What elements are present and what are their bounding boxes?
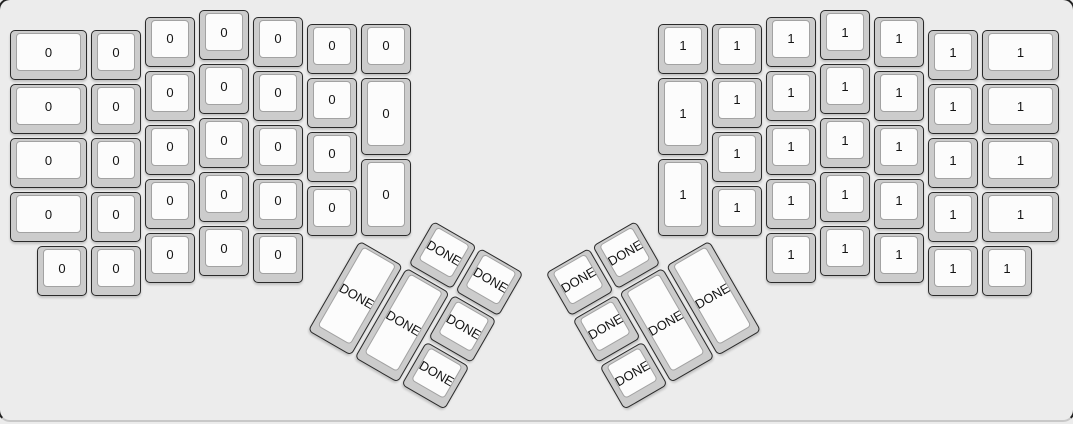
keycap[interactable]: 1	[658, 159, 708, 236]
keycap[interactable]: 1	[982, 30, 1059, 80]
keycap-top: 0	[313, 189, 351, 227]
keycap-top: 0	[259, 182, 297, 220]
keycap-top: 0	[259, 20, 297, 58]
keycap-label: DONE	[384, 307, 423, 337]
keycap-top: 0	[259, 236, 297, 274]
keycap-label: 0	[382, 188, 389, 201]
keycap-top: 1	[718, 81, 756, 119]
keycap-label: 1	[787, 194, 794, 207]
keycap-top: DONE	[465, 253, 517, 305]
keycap-label: 1	[733, 39, 740, 52]
keycap[interactable]: 0	[253, 71, 303, 121]
keycap[interactable]: 0	[361, 78, 411, 155]
keycap-label: 1	[841, 188, 848, 201]
keycap[interactable]: 1	[820, 226, 870, 276]
keycap[interactable]: 1	[712, 78, 762, 128]
keycap-top: DONE	[411, 347, 463, 399]
keycap[interactable]: 0	[199, 172, 249, 222]
keycap[interactable]: 0	[361, 159, 411, 236]
keycap-label: 1	[1017, 208, 1024, 221]
keycap-top: 1	[880, 74, 918, 112]
keycap-label: DONE	[471, 264, 510, 294]
keycap-label: 1	[1017, 46, 1024, 59]
keycap-top: 0	[97, 87, 135, 125]
keycap-label: 0	[58, 262, 65, 275]
keycap-label: DONE	[586, 311, 625, 341]
keycap[interactable]: 0	[91, 192, 141, 242]
keycap-top: 1	[934, 249, 972, 287]
keycap[interactable]: 0	[253, 17, 303, 67]
keycap-label: 1	[841, 134, 848, 147]
keycap[interactable]: 1	[982, 246, 1032, 296]
keycap-top: 1	[988, 249, 1026, 287]
keycap-label: 0	[274, 32, 281, 45]
keycap-top: 0	[97, 195, 135, 233]
keycap-top: 0	[97, 249, 135, 287]
keycap[interactable]: 0	[199, 226, 249, 276]
keycap-label: 1	[733, 93, 740, 106]
keycap-label: 0	[166, 32, 173, 45]
keycap-label: 0	[274, 86, 281, 99]
keycap[interactable]: 1	[766, 17, 816, 67]
keycap-label: 0	[274, 140, 281, 153]
keycap-label: 1	[895, 194, 902, 207]
keycap-top: 0	[205, 67, 243, 105]
keycap-label: 0	[328, 147, 335, 160]
keycap[interactable]: 1	[820, 172, 870, 222]
keycap-label: 1	[841, 242, 848, 255]
keycap-label: 0	[220, 26, 227, 39]
keycap-top: 0	[313, 27, 351, 65]
keycap[interactable]: 0	[253, 233, 303, 283]
keycap[interactable]: 0	[307, 186, 357, 236]
keycap-label: 1	[841, 26, 848, 39]
keycap[interactable]: 1	[712, 186, 762, 236]
keycap-label: 0	[112, 154, 119, 167]
keycap[interactable]: 0	[91, 246, 141, 296]
keycap-top: 1	[826, 175, 864, 213]
keycap-top: 0	[97, 33, 135, 71]
keycap-top: 0	[16, 33, 81, 71]
keycap-label: DONE	[425, 237, 464, 267]
keycap-label: 1	[787, 32, 794, 45]
keycap[interactable]: 0	[253, 125, 303, 175]
keycap-top: 1	[718, 135, 756, 173]
keycap-top: 1	[988, 141, 1053, 179]
keycap-label: 0	[328, 201, 335, 214]
keycap-top: 0	[151, 128, 189, 166]
keycap-label: DONE	[417, 358, 456, 388]
keycap-top: 0	[151, 182, 189, 220]
keycap-top: 0	[151, 20, 189, 58]
keycap[interactable]: 0	[253, 179, 303, 229]
keycap-top: 1	[826, 121, 864, 159]
keycap[interactable]: 1	[928, 138, 978, 188]
keycap-label: 0	[220, 242, 227, 255]
keycap[interactable]: 1	[766, 179, 816, 229]
keycap[interactable]: 0	[10, 84, 87, 134]
keycap-top: 0	[259, 128, 297, 166]
keycap[interactable]: 1	[982, 192, 1059, 242]
keycap-label: 0	[45, 154, 52, 167]
keycap[interactable]: 0	[10, 138, 87, 188]
keycap[interactable]: 1	[874, 71, 924, 121]
keycap[interactable]: 1	[712, 24, 762, 74]
keycap-label: 1	[679, 39, 686, 52]
keycap-top: 1	[988, 87, 1053, 125]
keycap[interactable]: 0	[199, 118, 249, 168]
keycap-top: 1	[772, 236, 810, 274]
keycap-top: 0	[205, 175, 243, 213]
keycap-label: 0	[45, 100, 52, 113]
keycap-top: 1	[880, 20, 918, 58]
keycap-label: DONE	[646, 307, 685, 337]
keycap-label: DONE	[605, 237, 644, 267]
keycap[interactable]: 1	[874, 179, 924, 229]
keycap[interactable]: 1	[982, 84, 1059, 134]
keycap-label: 0	[328, 93, 335, 106]
keycap-label: 0	[274, 248, 281, 261]
keycap-top: 0	[367, 81, 405, 146]
keycap-label: DONE	[613, 358, 652, 388]
keycap[interactable]: 1	[928, 84, 978, 134]
keycap[interactable]: 0	[145, 233, 195, 283]
keycap-label: 1	[787, 248, 794, 261]
keycap-top: 0	[367, 162, 405, 227]
keycap-label: 1	[1003, 262, 1010, 275]
keycap-top: 0	[313, 81, 351, 119]
keycap[interactable]: 1	[766, 125, 816, 175]
keycap-top: 1	[718, 27, 756, 65]
keycap[interactable]: 1	[928, 30, 978, 80]
keycap[interactable]: 0	[145, 17, 195, 67]
keycap-top: 0	[151, 74, 189, 112]
keycap-top: DONE	[579, 300, 631, 352]
keycap-label: 1	[787, 86, 794, 99]
keycap-top: 0	[16, 141, 81, 179]
keycap-top: DONE	[606, 347, 658, 399]
keycap[interactable]: 1	[874, 17, 924, 67]
keycap-top: 1	[664, 162, 702, 227]
keycap[interactable]: 0	[307, 78, 357, 128]
keycap-top: DONE	[552, 253, 604, 305]
keycap-label: 0	[112, 262, 119, 275]
keycap-label: 1	[733, 201, 740, 214]
keycap[interactable]: 0	[307, 132, 357, 182]
keycap-label: 0	[382, 107, 389, 120]
keycap-label: 0	[166, 248, 173, 261]
keycap[interactable]: 0	[199, 64, 249, 114]
keycap[interactable]: 0	[91, 30, 141, 80]
keycap[interactable]: 1	[766, 71, 816, 121]
keycap-label: 1	[733, 147, 740, 160]
keycap-top: 0	[43, 249, 81, 287]
keycap[interactable]: 0	[145, 71, 195, 121]
keycap-top: 1	[988, 195, 1053, 233]
keycap-label: 0	[45, 208, 52, 221]
keycap-label: 0	[328, 39, 335, 52]
keycap-label: DONE	[337, 280, 376, 310]
keycap[interactable]: 1	[712, 132, 762, 182]
keycap-top: 1	[772, 20, 810, 58]
keycap-top: 1	[772, 128, 810, 166]
keycap[interactable]: 1	[820, 64, 870, 114]
keycap-label: 1	[787, 140, 794, 153]
keycap[interactable]: 0	[361, 24, 411, 74]
keycap-label: 1	[949, 262, 956, 275]
keycap-top: 1	[934, 195, 972, 233]
keycap-label: 0	[382, 39, 389, 52]
keycap-top: 1	[772, 182, 810, 220]
keycap-label: 1	[949, 154, 956, 167]
keycap-top: 0	[367, 27, 405, 65]
keycap[interactable]: 1	[820, 118, 870, 168]
keycap[interactable]: 1	[658, 78, 708, 155]
keycap-top: 1	[880, 182, 918, 220]
keycap[interactable]: 0	[145, 125, 195, 175]
keycap-label: DONE	[444, 311, 483, 341]
keycap-top: DONE	[599, 226, 651, 278]
keycap[interactable]: 1	[928, 246, 978, 296]
keycap-top: 1	[826, 13, 864, 51]
keycap[interactable]: 1	[982, 138, 1059, 188]
keycap-top: 0	[205, 121, 243, 159]
keycap-top: 0	[97, 141, 135, 179]
keycap[interactable]: 1	[658, 24, 708, 74]
keycap[interactable]: 0	[145, 179, 195, 229]
keycap-top: 1	[934, 87, 972, 125]
keycap-label: 1	[1017, 100, 1024, 113]
keycap-top: 1	[880, 128, 918, 166]
keycap-label: 0	[166, 86, 173, 99]
keycap[interactable]: 1	[820, 10, 870, 60]
keycap-top: 1	[664, 81, 702, 146]
keycap-label: 1	[1017, 154, 1024, 167]
keycap[interactable]: 0	[91, 138, 141, 188]
keycap-top: 1	[772, 74, 810, 112]
keycap-label: 1	[679, 188, 686, 201]
keycap[interactable]: 1	[874, 125, 924, 175]
kle-canvas: 0000000000000000000000000000000011111111…	[0, 0, 1073, 424]
keycap-label: 0	[220, 188, 227, 201]
keycap-top: 0	[313, 135, 351, 173]
keycap-label: 1	[895, 86, 902, 99]
keycap[interactable]: 0	[10, 192, 87, 242]
keycap[interactable]: 0	[10, 30, 87, 80]
keycap-top: 0	[205, 229, 243, 267]
keycap-label: 0	[274, 194, 281, 207]
keycap-top: 1	[934, 33, 972, 71]
keycap-label: DONE	[693, 280, 732, 310]
keycap-label: 0	[220, 134, 227, 147]
keycap-label: 1	[679, 107, 686, 120]
keycap-top: 0	[259, 74, 297, 112]
keycap-label: 1	[949, 100, 956, 113]
keycap-label: 0	[112, 100, 119, 113]
keycap-top: 1	[988, 33, 1053, 71]
keycap-top: 1	[826, 67, 864, 105]
keycap[interactable]: 0	[307, 24, 357, 74]
keycap[interactable]: 0	[199, 10, 249, 60]
keycap-label: 1	[895, 32, 902, 45]
keycap-label: 1	[895, 248, 902, 261]
keycap-label: 1	[895, 140, 902, 153]
keycap-label: 0	[166, 194, 173, 207]
keycap[interactable]: 0	[37, 246, 87, 296]
keycap-label: 1	[949, 46, 956, 59]
keycap-top: DONE	[418, 226, 470, 278]
keycap-top: 1	[934, 141, 972, 179]
keycap-top: 0	[16, 195, 81, 233]
keycap-label: 0	[220, 80, 227, 93]
keycap-top: 1	[826, 229, 864, 267]
keycap-top: DONE	[438, 300, 490, 352]
keycap[interactable]: 0	[91, 84, 141, 134]
keycap[interactable]: 1	[928, 192, 978, 242]
keycap-label: 0	[45, 46, 52, 59]
keycap-top: 1	[718, 189, 756, 227]
keycap-top: 0	[151, 236, 189, 274]
keycap-label: 1	[949, 208, 956, 221]
keycap-top: 1	[664, 27, 702, 65]
keycap[interactable]: 1	[874, 233, 924, 283]
keycap-top: 1	[880, 236, 918, 274]
keycap-top: 0	[16, 87, 81, 125]
keycap[interactable]: 1	[766, 233, 816, 283]
keycap-label: 0	[112, 208, 119, 221]
keycap-label: 0	[166, 140, 173, 153]
keycap-top: 0	[205, 13, 243, 51]
keycap-label: DONE	[559, 264, 598, 294]
keycap-label: 1	[841, 80, 848, 93]
keycap-label: 0	[112, 46, 119, 59]
